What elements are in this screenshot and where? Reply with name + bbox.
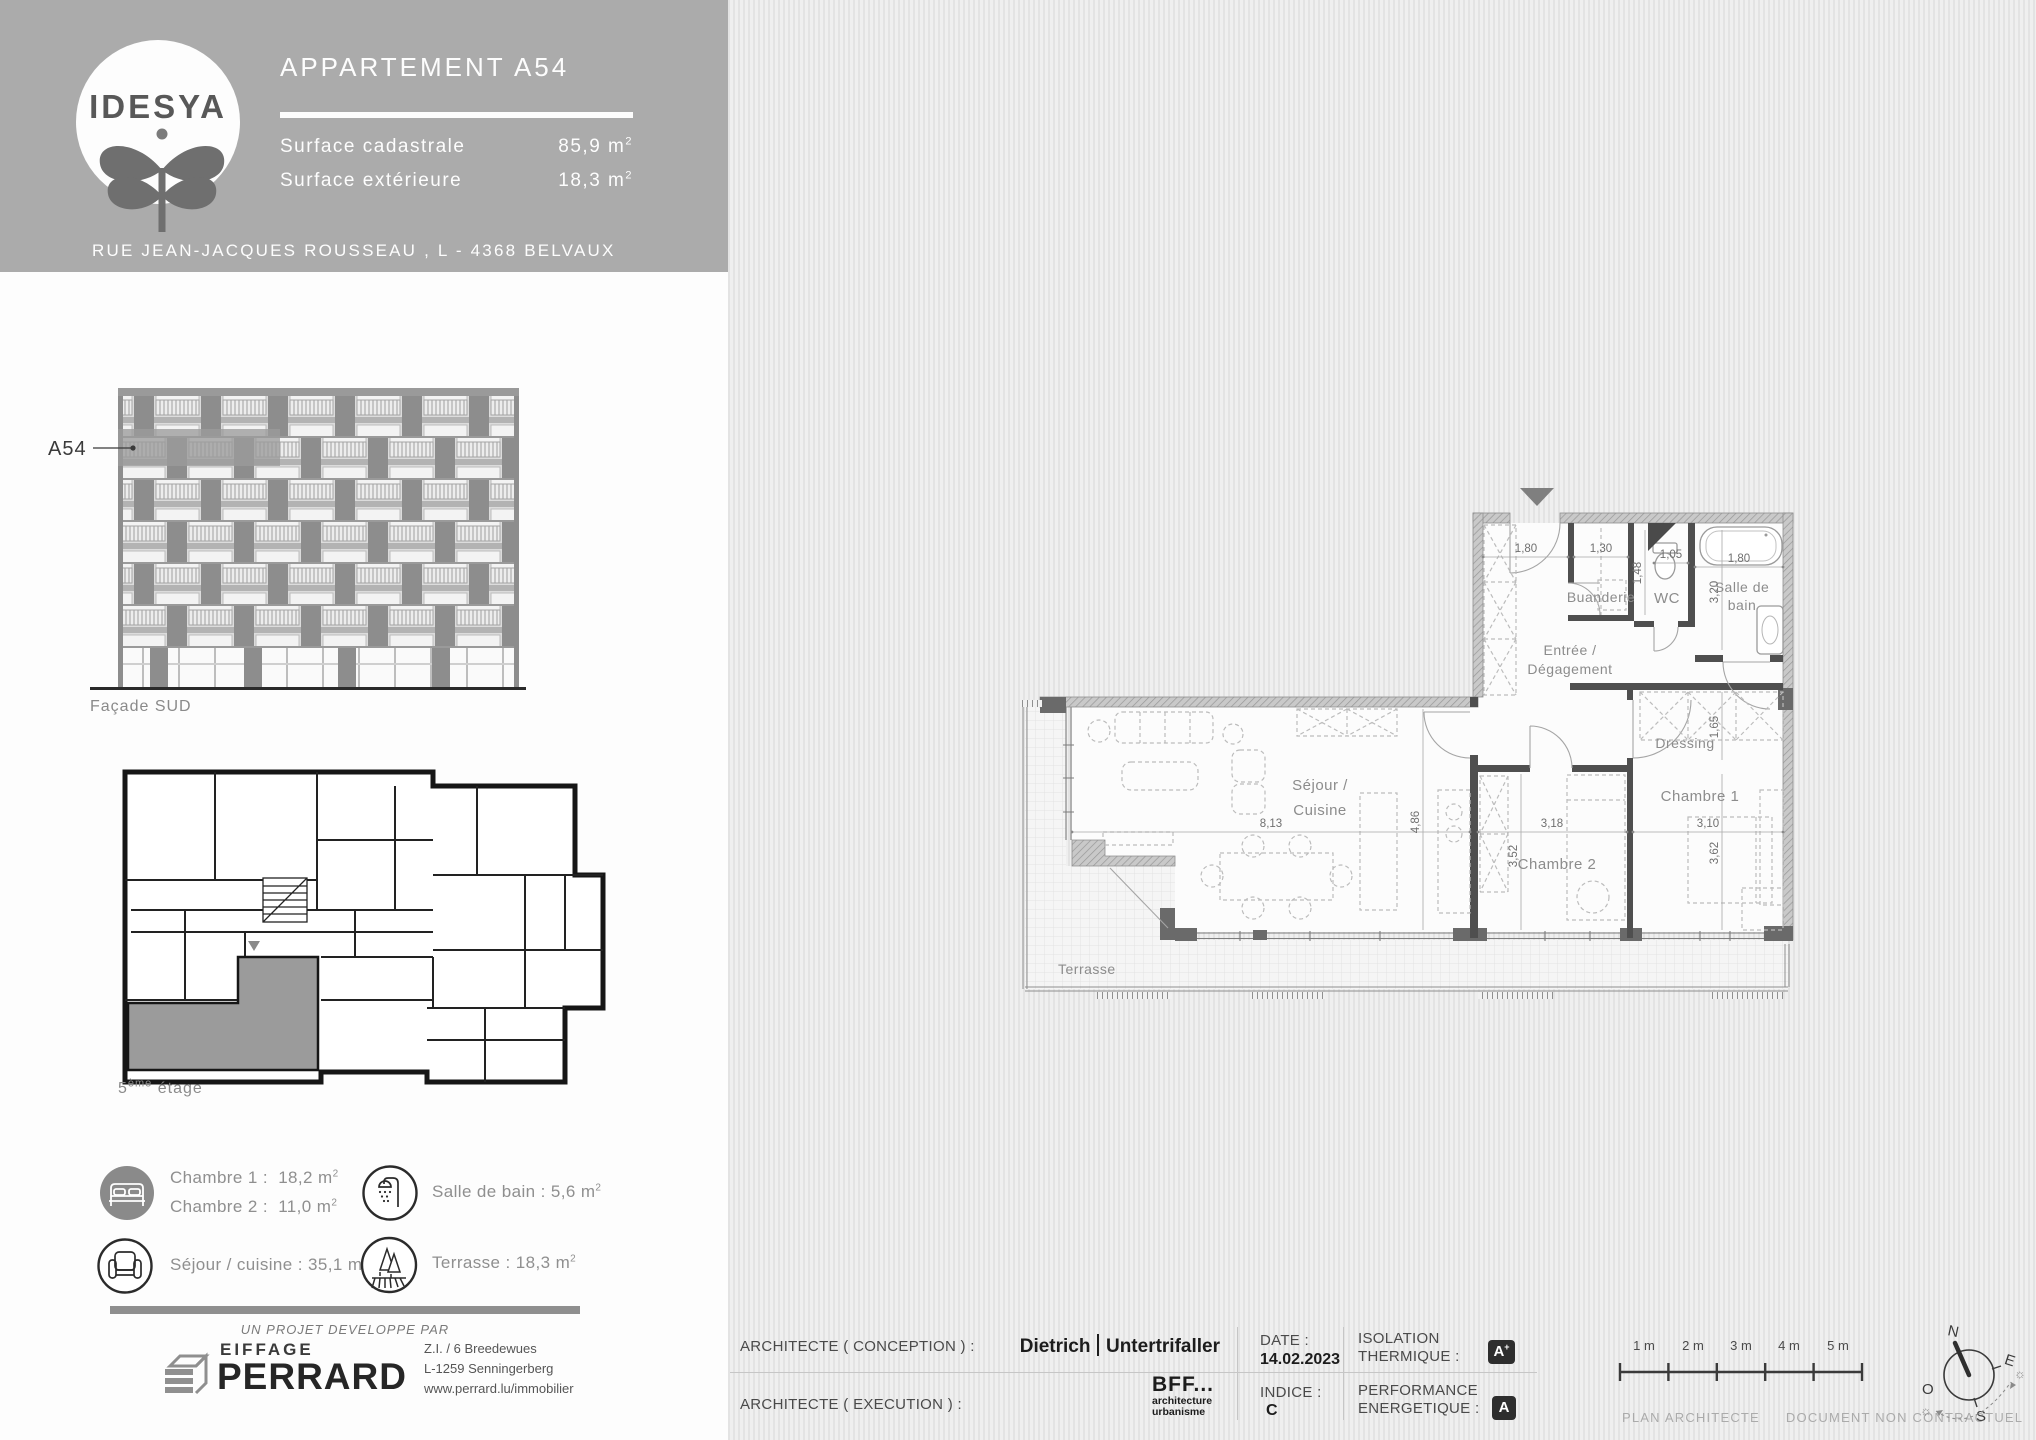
apartment-floor-plan: 1,80 1,30 1,05 1,48 1,80 3,20 1,65 8,13 … <box>1000 470 1820 1015</box>
entry-arrow-icon <box>1520 488 1554 506</box>
dim-ch1-w: 3,10 <box>1697 818 1719 830</box>
developer-divider-bar <box>110 1306 580 1314</box>
svg-text:S: S <box>1976 1408 1986 1425</box>
surface-value: 85,9 m2 <box>558 136 633 158</box>
facade-caption: Façade SUD <box>90 698 192 716</box>
key-plan-caption: 5ème étage <box>118 1080 203 1098</box>
scale-bar: 1 m 2 m 3 m 4 m 5 m <box>1608 1332 1874 1384</box>
legend-line: Terrasse : 18,3 m2 <box>432 1253 576 1273</box>
facade-drawing: A54 <box>40 382 540 727</box>
dietrich-untertrifaller-logo: DietrichUntertrifaller <box>950 1334 1220 1358</box>
indice-value: C <box>1266 1402 1278 1420</box>
room-label-chambre2: Chambre 2 <box>1518 856 1597 873</box>
dim-entree: 1,80 <box>1515 543 1537 555</box>
room-label-terrasse: Terrasse <box>1058 961 1116 977</box>
date-label: DATE : <box>1260 1332 1309 1349</box>
legend-line: Chambre 1 : 18,2 m2 <box>170 1168 339 1188</box>
developer-address-line: L-1259 Senningerberg <box>424 1361 553 1376</box>
facade-unit-label: A54 <box>48 438 87 460</box>
surface-label: Surface extérieure <box>280 170 462 192</box>
svg-text:N: N <box>1946 1322 1960 1341</box>
svg-text:O: O <box>1922 1381 1934 1398</box>
title-underline <box>280 112 633 118</box>
dim-ch1-h: 3,62 <box>1709 842 1721 864</box>
idesya-logo-icon: IDESYA <box>52 18 272 238</box>
svg-text:☼: ☼ <box>1920 1403 1932 1418</box>
date-value: 14.02.2023 <box>1260 1351 1340 1369</box>
conception-label: ARCHITECTE ( CONCEPTION ) : <box>740 1338 975 1355</box>
bed-icon <box>99 1165 155 1221</box>
trees-icon <box>360 1236 418 1294</box>
execution-label: ARCHITECTE ( EXECUTION ) : <box>740 1396 962 1413</box>
address: RUE JEAN-JACQUES ROUSSEAU , L - 4368 BEL… <box>92 241 616 261</box>
surface-label: Surface cadastrale <box>280 136 465 158</box>
legend-line: Chambre 2 : 11,0 m2 <box>170 1197 337 1217</box>
brand-perrard: PERRARD <box>217 1356 407 1398</box>
svg-text:1 m: 1 m <box>1633 1338 1655 1353</box>
key-plan-drawing <box>95 760 615 1090</box>
dim-wc-w: 1,05 <box>1660 549 1682 561</box>
room-label-entree: Dégagement <box>1527 661 1612 677</box>
isolation-label: ISOLATION <box>1358 1330 1440 1347</box>
room-label-chambre1: Chambre 1 <box>1661 788 1740 805</box>
titleblock-hdivider <box>730 1372 1537 1373</box>
dim-wc-h: 1,48 <box>1632 562 1644 584</box>
surface-value: 18,3 m2 <box>558 170 633 192</box>
svg-text:4 m: 4 m <box>1778 1338 1800 1353</box>
svg-text:2 m: 2 m <box>1682 1338 1704 1353</box>
room-label-sejour: Séjour / <box>1292 777 1348 794</box>
developer-address-line: www.perrard.lu/immobilier <box>424 1381 574 1396</box>
indice-label: INDICE : <box>1260 1384 1322 1401</box>
svg-text:3 m: 3 m <box>1730 1338 1752 1353</box>
dim-buanderie: 1,30 <box>1590 543 1612 555</box>
surface-row: Surface cadastrale 85,9 m2 <box>280 136 633 158</box>
room-label-sdb: bain <box>1728 597 1756 613</box>
isolation-grade-badge: A+ <box>1488 1340 1515 1364</box>
performance-grade-badge: A <box>1492 1396 1516 1420</box>
header: IDESYA APPARTEMENT A54 Surface cadastral… <box>0 0 728 272</box>
sofa-icon <box>97 1238 153 1294</box>
room-label-entree: Entrée / <box>1543 642 1596 658</box>
dim-sejour-h: 4,86 <box>1410 811 1422 833</box>
dim-sdb-w: 1,80 <box>1728 553 1750 565</box>
room-label-sejour: Cuisine <box>1293 802 1347 819</box>
developer-address-line: Z.I. / 6 Breedewues <box>424 1341 537 1356</box>
titleblock-vdivider <box>1343 1327 1344 1420</box>
shower-icon <box>362 1165 418 1221</box>
legend-line: Séjour / cuisine : 35,1 m2 <box>170 1255 368 1275</box>
facade-unit-highlight <box>118 429 280 466</box>
dim-ch2-w: 3,18 <box>1541 818 1563 830</box>
surface-row: Surface extérieure 18,3 m2 <box>280 170 633 192</box>
plan-sheet: IDESYA APPARTEMENT A54 Surface cadastral… <box>0 0 2036 1440</box>
page-title: APPARTEMENT A54 <box>280 52 569 83</box>
compass-icon: N E O S ☼ ☼ <box>1912 1318 2034 1436</box>
developer-tagline: UN PROJET DEVELOPPE PAR <box>110 1322 580 1337</box>
perrard-cube-icon <box>163 1352 211 1400</box>
room-label-sdb: Salle de <box>1715 579 1770 595</box>
logo-text: IDESYA <box>89 88 227 125</box>
performance-label: PERFORMANCE <box>1358 1382 1478 1399</box>
legend-line: Salle de bain : 5,6 m2 <box>432 1182 601 1202</box>
bff-logo: BFF... architecture urbanisme <box>1152 1374 1214 1418</box>
dim-sejour-w: 8,13 <box>1260 818 1282 830</box>
room-label-buanderie: Buanderie <box>1567 589 1635 605</box>
performance-label: ENERGETIQUE : <box>1358 1400 1479 1417</box>
room-label-dressing: Dressing <box>1655 735 1714 751</box>
svg-text:☼: ☼ <box>2014 1366 2026 1381</box>
titleblock-vdivider <box>1237 1327 1238 1420</box>
isolation-label: THERMIQUE : <box>1358 1348 1460 1365</box>
room-label-wc: WC <box>1654 590 1680 607</box>
svg-text:5 m: 5 m <box>1827 1338 1849 1353</box>
